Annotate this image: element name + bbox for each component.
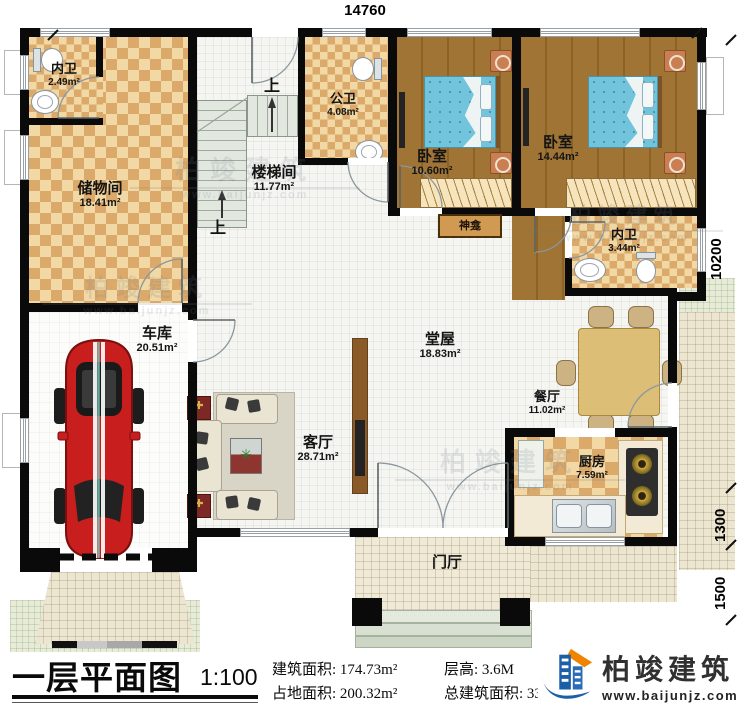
window bbox=[407, 28, 492, 37]
coffee-table-icon: ✳ bbox=[230, 438, 262, 474]
sink-icon bbox=[31, 90, 59, 114]
door-opening bbox=[555, 428, 615, 437]
pillow-icon bbox=[480, 84, 492, 110]
stat-built-area: 建筑面积: 174.73m² bbox=[272, 658, 444, 679]
room-label-menting: 门厅 bbox=[432, 554, 462, 571]
title-underline-thin bbox=[12, 702, 258, 703]
chair-icon bbox=[556, 360, 576, 386]
sink-basin bbox=[556, 504, 582, 528]
porch-step bbox=[355, 636, 532, 648]
page-title: 一层平面图 bbox=[12, 651, 182, 699]
window bbox=[40, 28, 110, 37]
headboard-icon bbox=[496, 76, 500, 148]
door-opening bbox=[348, 158, 388, 165]
door-opening bbox=[378, 528, 508, 537]
wall bbox=[29, 118, 103, 125]
cushion-icon bbox=[247, 399, 261, 413]
room-label-neiwei1: 内卫 2.49m² bbox=[48, 62, 80, 88]
room-label-neiwei2: 内卫 3.44m² bbox=[608, 228, 640, 254]
wall bbox=[512, 37, 521, 216]
door-opening bbox=[668, 383, 677, 427]
room-label-gongwei: 公卫 4.08m² bbox=[327, 92, 359, 118]
tv-icon bbox=[355, 420, 365, 476]
burner-icon bbox=[632, 486, 652, 506]
dimension-right-total: 10200 bbox=[708, 208, 725, 280]
plant-icon: ✳ bbox=[240, 447, 253, 464]
sink-icon bbox=[574, 258, 606, 282]
wall bbox=[152, 548, 197, 572]
fridge-icon bbox=[518, 440, 544, 488]
plan-scale: 1:100 bbox=[200, 664, 258, 691]
floor-plan-canvas: ✳ bbox=[0, 0, 750, 713]
window bbox=[697, 62, 706, 110]
stat-land-area: 占地面积: 200.32m² bbox=[272, 682, 444, 703]
porch-column bbox=[500, 598, 530, 626]
dimension-top: 14760 bbox=[320, 2, 410, 19]
dimension-right-mid: 1300 bbox=[712, 494, 729, 542]
sofa-icon bbox=[216, 394, 278, 424]
window bbox=[322, 28, 366, 37]
stairs-icon bbox=[197, 100, 247, 228]
door-opening bbox=[400, 208, 442, 216]
brand-name: 柏竣建筑 bbox=[602, 648, 738, 688]
graphic-scale-bar bbox=[52, 641, 177, 648]
room-label-canting: 餐厅 11.02m² bbox=[529, 390, 566, 416]
pillow-icon bbox=[642, 114, 654, 140]
window bbox=[540, 28, 640, 37]
brand-logo: 柏竣建筑 www.baijunjz.com bbox=[538, 646, 738, 704]
toilet-icon bbox=[636, 259, 656, 283]
wall bbox=[20, 28, 29, 572]
room-label-chuwujian: 储物间 18.41m² bbox=[77, 180, 122, 210]
nightstand-icon bbox=[664, 50, 686, 72]
dimension-right-bottom: 1500 bbox=[712, 558, 729, 610]
room-label-tangwu: 堂屋 18.83m² bbox=[420, 331, 461, 361]
headboard-icon bbox=[658, 76, 662, 148]
window bbox=[20, 418, 29, 463]
chair-icon bbox=[628, 306, 654, 328]
door-opening bbox=[252, 28, 298, 37]
stat-floor-height: 层高: 3.6M bbox=[444, 658, 514, 679]
nightstand-icon bbox=[490, 50, 512, 72]
patio-bottom bbox=[514, 546, 677, 602]
toilet-icon bbox=[352, 57, 374, 81]
window-sill bbox=[2, 413, 21, 468]
window-sill bbox=[706, 57, 724, 115]
stair-up-label: 上 bbox=[210, 214, 226, 238]
floor-hallway bbox=[512, 216, 565, 300]
toilet-icon bbox=[374, 58, 382, 80]
wall bbox=[96, 37, 103, 77]
tv-icon bbox=[399, 92, 405, 148]
driveway bbox=[35, 572, 195, 644]
wall bbox=[298, 37, 305, 165]
door-opening bbox=[535, 208, 571, 216]
wardrobe-icon bbox=[566, 178, 696, 208]
sink-basin bbox=[586, 504, 612, 528]
brand-text: 柏竣建筑 www.baijunjz.com bbox=[602, 648, 738, 703]
wall bbox=[565, 288, 677, 296]
tv-icon bbox=[523, 88, 529, 146]
wall bbox=[188, 37, 197, 303]
door-opening bbox=[188, 320, 197, 362]
dining-table-icon bbox=[578, 328, 660, 416]
shrine-box: 神龛 bbox=[438, 214, 502, 238]
window bbox=[240, 528, 350, 537]
brand-url: www.baijunjz.com bbox=[602, 688, 738, 703]
window-sill bbox=[4, 50, 21, 95]
shrine-label: 神龛 bbox=[459, 220, 481, 232]
car-icon bbox=[52, 336, 146, 562]
pillow-icon bbox=[480, 116, 492, 142]
window bbox=[20, 135, 29, 180]
room-label-keting: 客厅 28.71m² bbox=[298, 434, 339, 464]
wardrobe-icon bbox=[420, 178, 512, 208]
brand-logo-icon bbox=[538, 646, 596, 704]
nightstand-icon bbox=[490, 152, 512, 174]
nightstand-icon bbox=[664, 152, 686, 174]
title-underline bbox=[12, 695, 258, 699]
window bbox=[697, 228, 706, 272]
stairs-landing bbox=[247, 95, 298, 137]
chair-icon bbox=[588, 306, 614, 328]
window bbox=[20, 55, 29, 90]
door-opening bbox=[565, 222, 572, 258]
cushion-icon bbox=[225, 495, 239, 509]
room-label-loutijian: 楼梯间 11.77m² bbox=[251, 164, 296, 194]
room-label-woshi1: 卧室 10.60m² bbox=[412, 148, 453, 178]
room-label-chufang: 厨房 7.59m² bbox=[576, 455, 608, 481]
room-label-woshi2: 卧室 14.44m² bbox=[538, 134, 579, 164]
stair-up-label: 上 bbox=[264, 72, 280, 96]
cushion-icon bbox=[195, 431, 209, 445]
window bbox=[545, 537, 625, 546]
cushion-icon bbox=[247, 497, 261, 511]
toilet-icon bbox=[33, 48, 41, 72]
wall bbox=[388, 37, 397, 216]
room-label-cheku: 车库 20.51m² bbox=[137, 325, 178, 355]
door-opening bbox=[138, 303, 182, 312]
window-sill bbox=[4, 130, 21, 185]
burner-icon bbox=[632, 454, 652, 474]
porch-column bbox=[352, 598, 382, 626]
pillow-icon bbox=[642, 82, 654, 108]
